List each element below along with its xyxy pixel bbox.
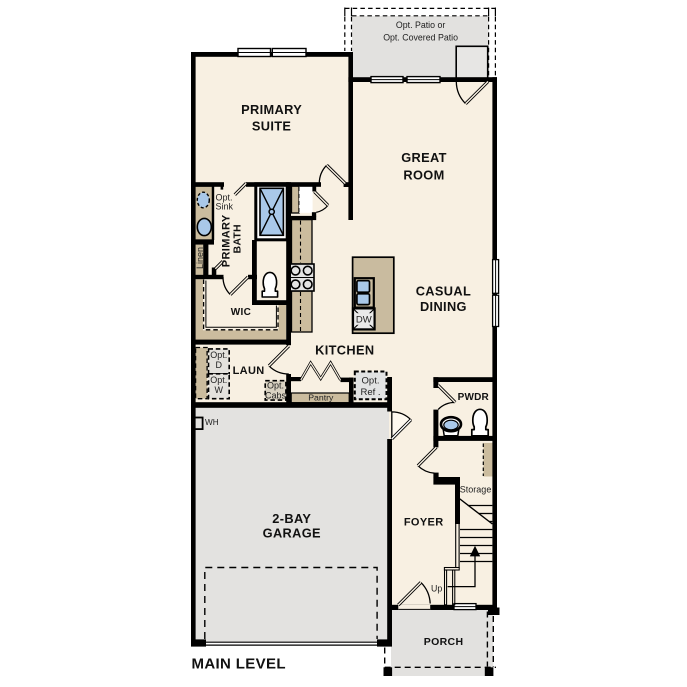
svg-text:KITCHEN: KITCHEN: [315, 343, 374, 358]
svg-text:Pantry: Pantry: [308, 392, 334, 402]
svg-text:GARAGE: GARAGE: [263, 526, 321, 541]
svg-text:BATH: BATH: [232, 224, 243, 253]
svg-text:Opt. Covered Patio: Opt. Covered Patio: [383, 32, 458, 42]
svg-text:DW: DW: [356, 315, 372, 326]
svg-text:FOYER: FOYER: [404, 517, 444, 529]
svg-text:WIC: WIC: [231, 307, 252, 318]
svg-text:Linen: Linen: [195, 247, 205, 269]
svg-text:PORCH: PORCH: [424, 636, 464, 648]
svg-text:Up: Up: [431, 584, 442, 594]
svg-text:LAUN: LAUN: [233, 365, 265, 377]
svg-text:WH: WH: [205, 418, 219, 427]
svg-text:W: W: [215, 385, 224, 395]
svg-text:CASUAL: CASUAL: [416, 283, 471, 298]
svg-text:Opt. Patio or: Opt. Patio or: [396, 20, 445, 30]
svg-text:PRIMARY: PRIMARY: [220, 214, 232, 267]
svg-text:MAIN LEVEL: MAIN LEVEL: [192, 655, 286, 672]
svg-text:Ref .: Ref .: [360, 387, 380, 398]
svg-text:Opt.: Opt.: [362, 376, 380, 387]
svg-text:ROOM: ROOM: [403, 167, 444, 182]
svg-text:PWDR: PWDR: [458, 392, 490, 403]
svg-text:SUITE: SUITE: [252, 118, 292, 133]
svg-text:D: D: [216, 360, 223, 370]
svg-text:Opt.: Opt.: [210, 375, 227, 385]
svg-text:Opt.: Opt.: [210, 350, 227, 360]
svg-text:Cabs: Cabs: [265, 391, 287, 401]
svg-text:DINING: DINING: [420, 299, 467, 314]
svg-text:GREAT: GREAT: [401, 150, 447, 165]
svg-text:Storage: Storage: [460, 484, 492, 494]
svg-text:Sink: Sink: [216, 201, 234, 211]
svg-text:PRIMARY: PRIMARY: [241, 102, 302, 117]
svg-text:Opt.: Opt.: [267, 381, 284, 391]
svg-text:2-BAY: 2-BAY: [272, 511, 311, 526]
